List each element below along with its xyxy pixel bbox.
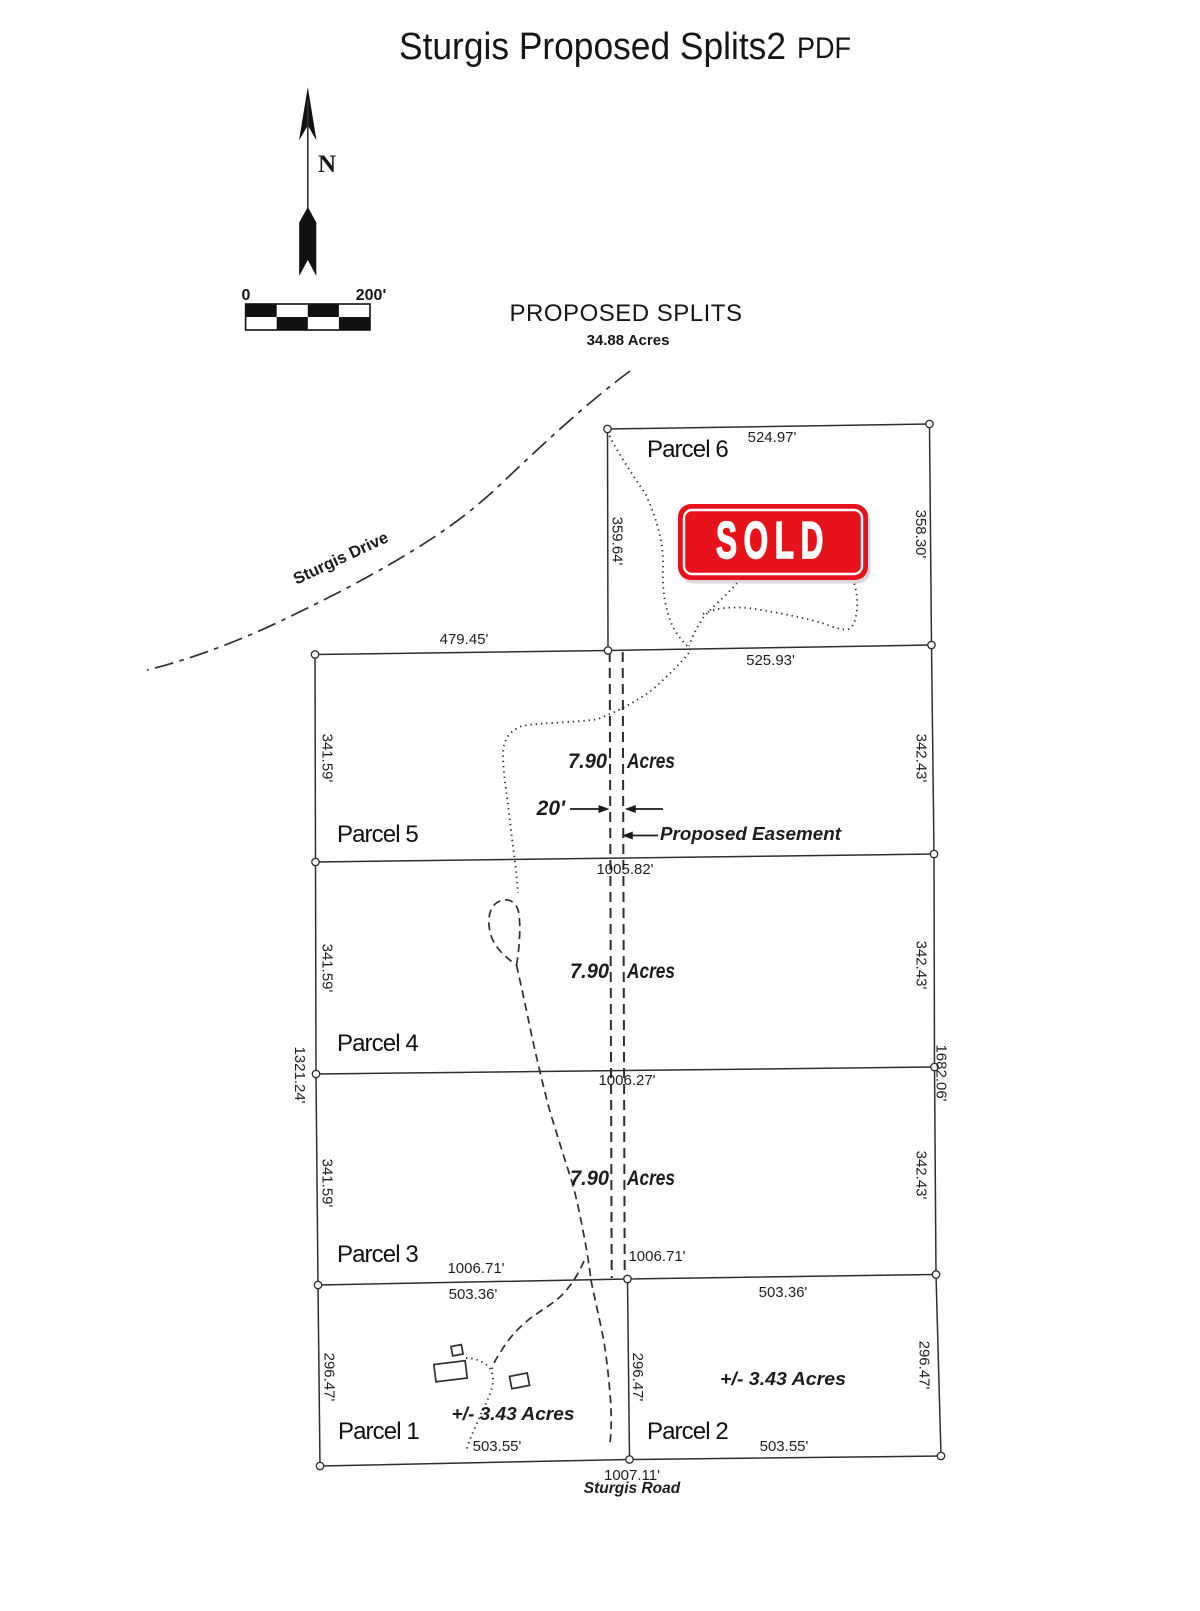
svg-text:342.43': 342.43' [913, 941, 930, 990]
svg-text:503.36': 503.36' [759, 1284, 808, 1301]
svg-text:358.30': 358.30' [912, 510, 929, 559]
svg-text:1006.71': 1006.71' [447, 1260, 504, 1277]
svg-text:Acres: Acres [626, 1167, 675, 1190]
svg-text:+/- 3.43 Acres: +/- 3.43 Acres [720, 1369, 846, 1389]
svg-text:Proposed Easement: Proposed Easement [660, 824, 842, 844]
svg-text:N: N [318, 151, 336, 178]
svg-text:7.90: 7.90 [570, 1167, 609, 1190]
svg-text:+/- 3.43 Acres: +/- 3.43 Acres [452, 1404, 575, 1424]
svg-text:PDF: PDF [797, 32, 851, 65]
svg-text:Parcel 6: Parcel 6 [647, 436, 728, 463]
svg-text:SOLD: SOLD [716, 512, 830, 570]
svg-text:1682.06': 1682.06' [933, 1044, 950, 1101]
svg-text:Acres: Acres [626, 960, 675, 983]
svg-text:7.90: 7.90 [570, 960, 609, 983]
svg-text:200': 200' [356, 287, 387, 304]
svg-text:Sturgis Road: Sturgis Road [584, 1480, 681, 1497]
svg-text:342.43': 342.43' [913, 734, 930, 783]
svg-text:341.59': 341.59' [319, 734, 336, 783]
svg-text:296.47': 296.47' [916, 1341, 933, 1390]
svg-text:1005.82': 1005.82' [596, 861, 653, 878]
svg-text:Sturgis Proposed Splits2: Sturgis Proposed Splits2 [399, 26, 786, 68]
svg-text:Parcel 3: Parcel 3 [337, 1241, 418, 1268]
svg-text:341.59': 341.59' [319, 944, 336, 993]
svg-text:1006.71': 1006.71' [628, 1248, 685, 1265]
svg-text:34.88 Acres: 34.88 Acres [587, 332, 670, 349]
svg-text:525.93': 525.93' [746, 652, 795, 669]
svg-text:Parcel 2: Parcel 2 [647, 1418, 728, 1445]
svg-text:503.36': 503.36' [449, 1286, 498, 1303]
svg-text:479.45': 479.45' [440, 631, 489, 648]
svg-text:Parcel 4: Parcel 4 [337, 1030, 418, 1057]
svg-text:296.47': 296.47' [321, 1353, 338, 1402]
svg-text:342.43': 342.43' [913, 1151, 930, 1200]
svg-text:503.55': 503.55' [760, 1438, 809, 1455]
svg-text:296.47': 296.47' [629, 1353, 646, 1402]
svg-text:Acres: Acres [626, 750, 675, 773]
svg-text:Parcel 5: Parcel 5 [337, 821, 418, 848]
svg-text:1321.24': 1321.24' [291, 1046, 308, 1103]
svg-text:503.55': 503.55' [473, 1438, 522, 1455]
svg-text:341.59': 341.59' [319, 1159, 336, 1208]
svg-text:7.90: 7.90 [568, 750, 607, 773]
svg-text:359.64': 359.64' [609, 517, 626, 566]
svg-text:PROPOSED SPLITS: PROPOSED SPLITS [510, 300, 743, 327]
svg-text:Sturgis Drive: Sturgis Drive [291, 529, 392, 589]
svg-text:20': 20' [536, 797, 566, 820]
svg-text:0: 0 [242, 287, 251, 304]
svg-text:Parcel 1: Parcel 1 [338, 1418, 419, 1445]
svg-text:1006.27': 1006.27' [598, 1072, 655, 1089]
svg-text:524.97': 524.97' [748, 429, 797, 446]
